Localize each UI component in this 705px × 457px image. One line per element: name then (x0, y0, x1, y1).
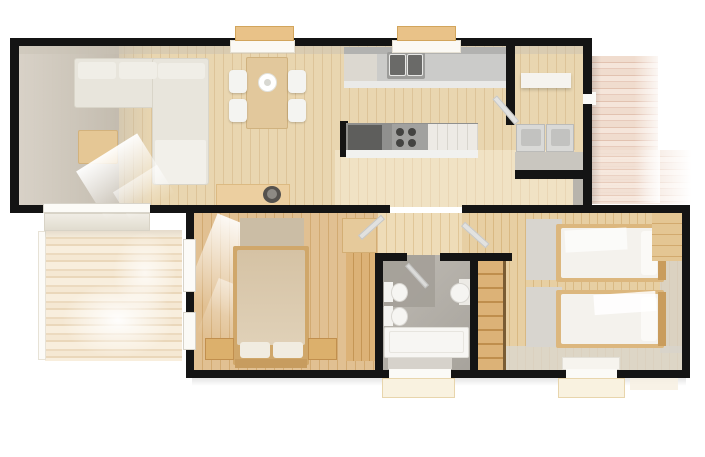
sofa-back-pillow-1 (78, 62, 116, 79)
right-wall-upper (583, 38, 592, 94)
left-wall (10, 38, 19, 213)
left-deck-fascia (38, 231, 46, 360)
living-deck-door (43, 203, 151, 213)
bidet-bowl (391, 307, 408, 326)
bathroom-wall-top-right (440, 253, 512, 261)
bath-sink-round (450, 283, 470, 303)
floor-plan (0, 0, 705, 457)
right-window-sill-faint (630, 378, 678, 390)
window-sill-1 (230, 40, 295, 53)
island-burner-2 (408, 128, 416, 136)
island-burner-1 (396, 128, 404, 136)
bathroom-wall-left (375, 253, 383, 371)
master-nightstand-right (308, 338, 337, 360)
bedroom-zone-wall-bottom-1 (186, 370, 389, 378)
bottom-wall-living-1 (10, 205, 44, 213)
utility-wall-shelf (521, 73, 571, 88)
bath-window-inner-sill (388, 358, 452, 369)
master-bed-pillow-2 (273, 342, 303, 358)
window-sill-2 (392, 40, 461, 53)
top-wall-segment-1 (10, 38, 236, 46)
bedroom-zone-wall-bottom-2 (451, 370, 566, 378)
island-burner-3 (396, 139, 404, 147)
bath-window-planter (382, 378, 455, 398)
master-bed-pillow-1 (240, 342, 270, 358)
island-dark-cabinet (348, 125, 382, 151)
top-wall-segment-2 (294, 38, 398, 46)
island-drawers (428, 124, 478, 152)
dryer-drum (551, 129, 570, 146)
master-nightstand-left (205, 338, 234, 360)
right-deck-upper-fade (634, 56, 660, 203)
bedroom-zone-wall-left-upper (186, 205, 194, 241)
bathroom-wall-right (470, 253, 478, 371)
master-terrace-door (183, 239, 196, 292)
dining-table (246, 57, 288, 129)
top-wall-segment-3 (456, 38, 592, 46)
island-burner-4 (408, 139, 416, 147)
dining-centerpiece-core (264, 79, 271, 86)
right-deck-wall-shadow (592, 56, 601, 204)
utility-counter-band (515, 152, 592, 171)
master-wardrobe (346, 253, 377, 361)
master-bed-headboard (235, 359, 307, 368)
twin-headboard-2 (658, 292, 666, 346)
twin-window-planter (558, 378, 625, 398)
sideboard-stove-inner (267, 189, 277, 199)
kitchen-sink-bowl-right (407, 54, 423, 76)
twin-closet-edge (503, 261, 506, 371)
window-planter-2 (397, 26, 456, 41)
master-bed-duvet (237, 250, 305, 345)
bedroom-zone-wall-left-mid (186, 290, 194, 314)
left-deck-sunlight-2 (113, 232, 177, 314)
island-front-face (346, 150, 478, 158)
twin-closet (478, 261, 505, 371)
dining-chair-2 (229, 99, 247, 122)
sofa-back-pillow-2 (119, 62, 157, 79)
twin-bed-1-sheen (564, 227, 627, 252)
dining-chair-4 (288, 99, 306, 122)
window-planter-1 (235, 26, 294, 41)
utility-bottom-wall (515, 170, 592, 179)
bedroom-zone-wall-bottom-3 (617, 370, 690, 378)
top-wall-bedroom-zone (462, 205, 690, 213)
bathroom-wall-top-left (375, 253, 407, 261)
kitchen-counter-face (344, 81, 506, 88)
toilet-bowl (391, 283, 408, 302)
bedroom-zone-wall-right (682, 205, 690, 378)
dining-chair-1 (229, 70, 247, 93)
bathtub-inner (389, 331, 464, 353)
sofa-back-pillow-3 (158, 63, 205, 79)
master-side-window (183, 312, 196, 350)
kitchen-sink-bowl-left (389, 54, 406, 76)
dining-chair-3 (288, 70, 306, 93)
washing-machine-drum (521, 129, 541, 146)
twin-corner-wardrobe (652, 213, 682, 261)
right-wall-lower (583, 104, 592, 206)
